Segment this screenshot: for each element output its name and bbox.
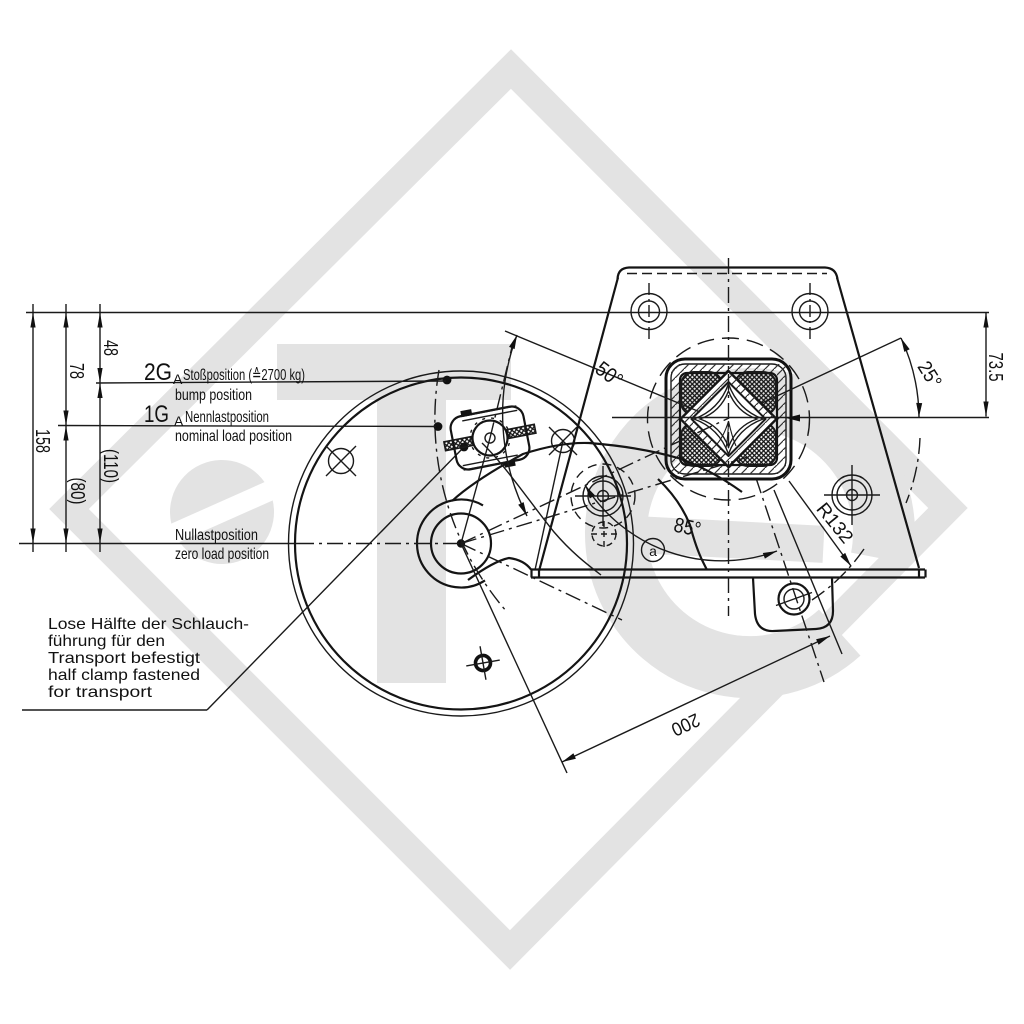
svg-text:for transport: for transport [48, 684, 153, 701]
svg-text:A: A [174, 413, 184, 429]
svg-text:78: 78 [65, 363, 87, 379]
svg-text:Lose Hälfte der Schlauch-: Lose Hälfte der Schlauch- [48, 616, 249, 633]
svg-text:nominal load position: nominal load position [175, 428, 292, 445]
svg-text:(110): (110) [99, 449, 121, 483]
svg-text:(80): (80) [66, 478, 88, 505]
svg-text:1G: 1G [144, 401, 169, 428]
svg-text:führung für den: führung für den [48, 633, 165, 650]
svg-text:half clamp fastened: half clamp fastened [48, 667, 200, 684]
svg-text:48: 48 [99, 340, 121, 356]
svg-text:Stoßposition (≙2700 kg): Stoßposition (≙2700 kg) [183, 367, 305, 384]
svg-text:Nennlastposition: Nennlastposition [185, 409, 269, 426]
svg-text:73.5: 73.5 [984, 353, 1006, 382]
svg-text:bump position: bump position [175, 387, 252, 404]
svg-text:158: 158 [31, 429, 53, 453]
svg-text:a: a [649, 543, 657, 559]
svg-text:A: A [173, 371, 183, 387]
svg-text:zero load position: zero load position [175, 546, 269, 563]
svg-text:Nullastposition: Nullastposition [175, 527, 258, 544]
svg-text:Transport befestigt: Transport befestigt [48, 650, 201, 667]
svg-text:2G: 2G [144, 359, 172, 386]
